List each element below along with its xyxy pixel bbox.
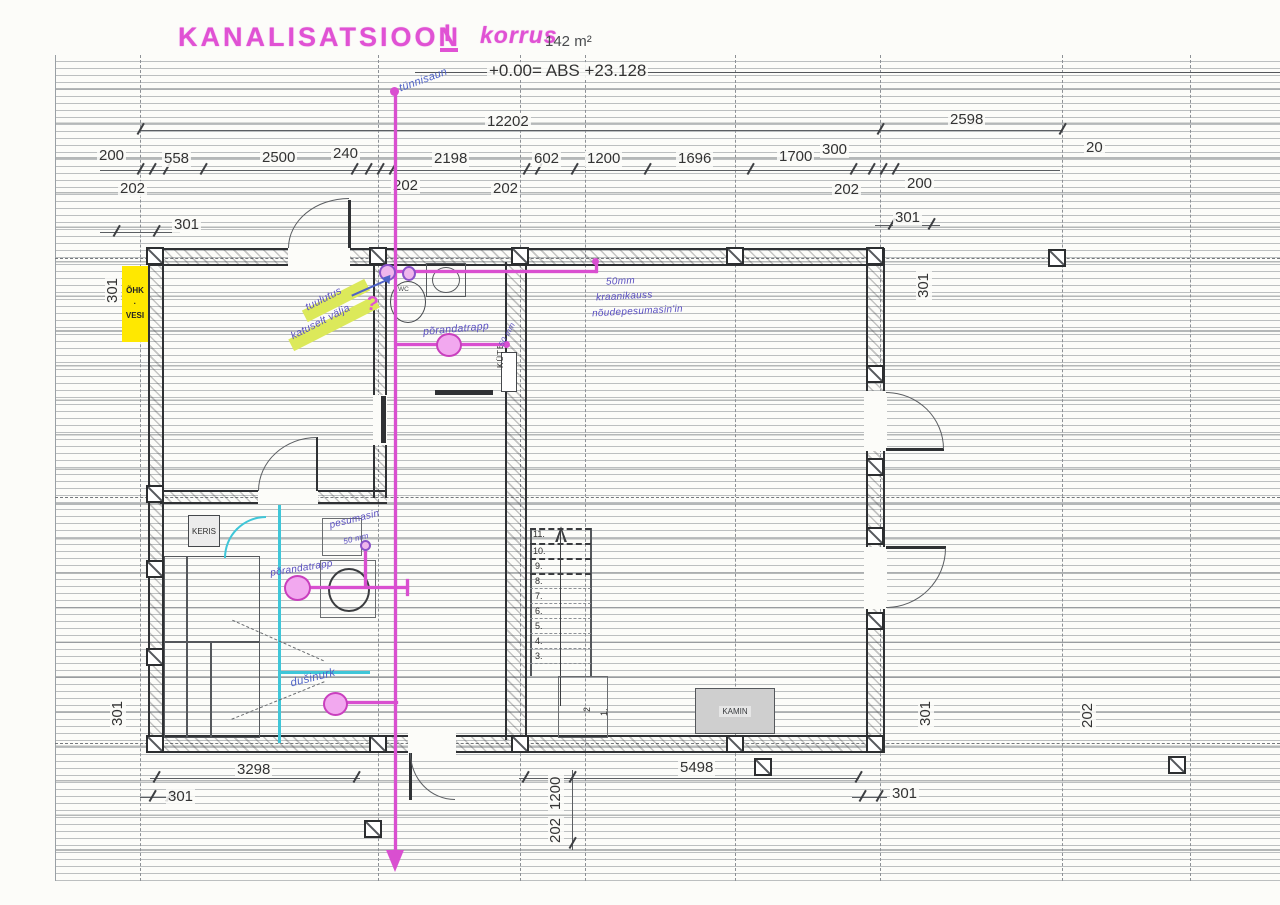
floor-drain-bathroom [436, 333, 462, 357]
axis-vertical [140, 55, 141, 881]
door-opening-right-2 [864, 547, 887, 609]
log-post [866, 365, 884, 383]
dim-2198: 2198 [432, 151, 469, 167]
stair-number: 8. [535, 576, 543, 586]
log-post [1048, 249, 1066, 267]
log-post [726, 247, 744, 265]
kyte-riser: KÜTE [501, 352, 517, 392]
log-post [146, 735, 164, 753]
stair-number: 11. [533, 529, 545, 539]
dim-1200-top: 1200 [585, 151, 622, 167]
paper-stripes [55, 55, 1280, 881]
axis-vertical [1190, 55, 1191, 881]
stair-number: 7. [535, 591, 543, 601]
kamin-label: KAMIN [719, 706, 750, 717]
log-post [726, 735, 744, 753]
shaft-label-air: ÕHK [126, 285, 144, 298]
log-post [866, 527, 884, 545]
dim-202-bottom-vert: 202 [548, 816, 564, 845]
axis-vertical [1062, 55, 1063, 881]
stair-number-2: 2 [582, 707, 592, 712]
dim-202-a: 202 [118, 181, 147, 197]
level-label: +0.00= ABS +23.128 [487, 62, 648, 80]
wall-exterior-right [866, 248, 885, 753]
floor-drain-shower [323, 692, 348, 716]
dim-2500: 2500 [260, 150, 297, 166]
dim-240: 240 [331, 146, 360, 162]
deck-post [754, 758, 772, 776]
pipe-washroom-endtick [406, 579, 409, 596]
pipe-washroom-branch [297, 586, 409, 589]
stair-number: 9. [535, 561, 543, 571]
pipe-kitchen-node [592, 258, 599, 265]
log-post [146, 648, 164, 666]
door-opening-right-1 [864, 391, 887, 451]
door-opening-entry [288, 246, 350, 268]
dim-301-left-vert: 301 [105, 276, 121, 305]
dim-1200-bottom-vert: 1200 [548, 775, 564, 812]
pipe-flow-arrow [386, 850, 404, 872]
floor-drain-washroom [284, 575, 311, 601]
axis-vertical [585, 55, 586, 881]
sauna-bench-edge [186, 556, 188, 738]
shaft-ohk-vesi: ÕHK · VESI [122, 266, 148, 342]
dim-301-bottom-right-vert: 301 [918, 699, 934, 728]
pipe-washer-stub [364, 545, 367, 587]
stair-number: 3. [535, 651, 543, 661]
log-post [866, 247, 884, 265]
dim-line-301-br [852, 797, 887, 798]
title-floor-numeral: I [440, 20, 458, 52]
area-label: 142 m² [545, 33, 592, 50]
log-post [866, 458, 884, 476]
dim-301-top-left: 301 [172, 217, 201, 233]
wc-label: WC [398, 286, 409, 293]
keris-stove: KERIS [188, 515, 220, 547]
keris-label: KERIS [192, 527, 216, 536]
dim-300: 300 [820, 142, 849, 158]
log-post [866, 612, 884, 630]
log-post [146, 560, 164, 578]
log-post [146, 247, 164, 265]
log-post [369, 247, 387, 265]
sauna-bench-outline [164, 556, 260, 738]
title-kanalisatsioon: KANALISATSIOON [178, 22, 461, 53]
dim-1696: 1696 [676, 151, 713, 167]
stair-number: 5. [535, 621, 543, 631]
pipe-wc-node [402, 266, 416, 281]
pipe-main-riser [394, 90, 397, 852]
dim-line-301-tl [100, 232, 180, 233]
dim-line-top-sub [100, 170, 1060, 171]
log-post [511, 735, 529, 753]
door-opening-back [408, 733, 456, 755]
pipe-kitchen-branch [396, 270, 597, 273]
stair-number-1: 1. [599, 708, 609, 716]
cyan-partition-vertical [278, 505, 281, 743]
dim-3298: 3298 [235, 762, 272, 778]
pipe-top-node [390, 87, 399, 96]
dim-301-right-vert: 301 [916, 271, 932, 300]
dim-1700: 1700 [777, 149, 814, 165]
dim-301-bottom-left-vert: 301 [110, 699, 126, 728]
stair-number: 6. [535, 606, 543, 616]
dim-202-bottom-right-vert: 202 [1080, 701, 1096, 730]
stairs-right-edge [590, 528, 592, 676]
deck-post [364, 820, 382, 838]
dim-5498: 5498 [678, 760, 715, 776]
dim-301-top-right: 301 [893, 210, 922, 226]
dot-separator: · [134, 298, 137, 311]
bathroom-vanity [435, 390, 493, 395]
dim-602: 602 [532, 151, 561, 167]
log-post [511, 247, 529, 265]
deck-post [1168, 756, 1186, 774]
dim-558: 558 [162, 151, 191, 167]
log-post [146, 485, 164, 503]
log-post [369, 735, 387, 753]
stairs-left-edge [530, 528, 532, 676]
floor-plan-sheet: KANALISATSIOON I korrus 142 m² +0.00= AB… [0, 0, 1280, 905]
dim-2598: 2598 [948, 112, 985, 128]
note-sink-size: 50mm [606, 275, 636, 288]
dim-200-b: 200 [905, 176, 934, 192]
dim-line-top [140, 130, 1062, 131]
shaft-label-water: VESI [126, 310, 144, 323]
kamin-fireplace: KAMIN [695, 688, 775, 734]
stair-number: 10. [533, 546, 546, 556]
stair-number: 4. [535, 636, 543, 646]
sauna-bench-step-edge [210, 641, 212, 738]
dim-202-d: 202 [832, 182, 861, 198]
pipe-shower-branch [340, 701, 398, 704]
dim-line-3298 [150, 778, 360, 779]
sauna-bench-step [164, 641, 260, 643]
door-leaf-bathroom [381, 396, 386, 443]
dim-12202: 12202 [485, 114, 531, 130]
dim-200-a: 200 [97, 148, 126, 164]
log-post [866, 735, 884, 753]
axis-vertical [735, 55, 736, 881]
door-opening-sauna [258, 490, 318, 504]
dim-301-bottom-right: 301 [890, 786, 919, 802]
dim-200-cut: 20 [1084, 140, 1105, 156]
dim-202-c: 202 [491, 181, 520, 197]
dim-301-bottom-left: 301 [166, 789, 195, 805]
